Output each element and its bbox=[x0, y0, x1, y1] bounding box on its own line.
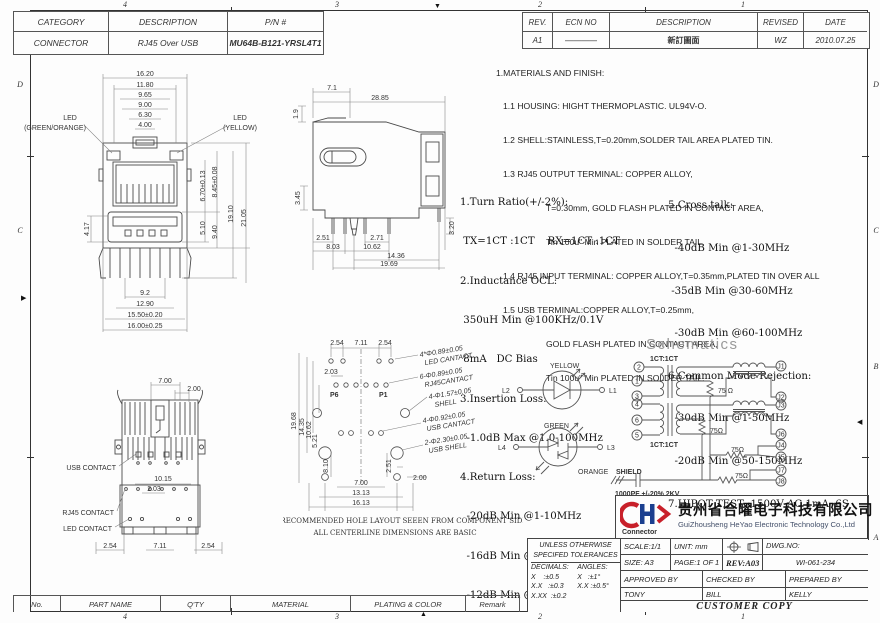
zone-top-2: 2 bbox=[534, 0, 546, 9]
decimal-tol-3: X.XX :±0.2 bbox=[531, 592, 577, 602]
ratio-bottom-label: 1CT:1CT bbox=[650, 442, 679, 449]
pin-j7: J7 bbox=[777, 468, 785, 475]
led-orange-label: ORANGE bbox=[578, 469, 609, 476]
angles-label: ANGLES: bbox=[577, 563, 620, 573]
led-yellow-label: YELLOW bbox=[550, 363, 580, 370]
projection-symbol-cell bbox=[722, 538, 762, 554]
prepared-by-value: KELLY bbox=[785, 587, 868, 600]
frame-tick bbox=[862, 156, 869, 157]
front-dim-16-00: 16.00±0.25 bbox=[128, 323, 163, 330]
pcb-dim-2-54-left: 2.54 bbox=[330, 340, 344, 347]
part-table-header-description: DESCRIPTION bbox=[109, 12, 228, 32]
rear-dim-10-15: 10.15 bbox=[154, 476, 172, 483]
zone-right-a: A bbox=[870, 533, 880, 542]
resistor-75-2: 75Ω bbox=[710, 428, 723, 435]
front-led-left-label: LED bbox=[63, 115, 77, 122]
rev-header-rev: REV. bbox=[523, 13, 553, 32]
part-table-header-pn: P/N # bbox=[228, 12, 323, 32]
pcb-annotations: 4*Φ0.89±0.05 LED CANTACT 6-Φ0.89±0.05 RJ… bbox=[419, 345, 476, 455]
pcb-dim-2-00: 2.00 bbox=[413, 475, 427, 482]
pcb-dim-19-68: 19.68 bbox=[291, 412, 298, 430]
led-symbols bbox=[514, 369, 605, 474]
rear-label-rj45-contact: RJ45 CONTACT bbox=[62, 510, 114, 517]
angle-tol-1: X :±1° bbox=[577, 573, 620, 583]
front-dim-6-70: 6.70±0.13 bbox=[200, 170, 207, 201]
zone-top-4: 4 bbox=[119, 0, 131, 9]
pcb-dim-2-54-right: 2.54 bbox=[378, 340, 392, 347]
tolerance-title-2: SPECIFED TOLERANCES bbox=[531, 551, 620, 564]
pin-j2: J2 bbox=[777, 395, 785, 402]
part-table: CATEGORY DESCRIPTION P/N # CONNECTOR RJ4… bbox=[13, 11, 324, 55]
dwg-no-value-cell: WI-061-234 bbox=[762, 554, 868, 570]
led-l2-label: L2 bbox=[502, 388, 510, 395]
part-table-header-category: CATEGORY bbox=[14, 12, 109, 32]
ratio-top-label: 1CT:1CT bbox=[650, 356, 679, 363]
prepared-by-label: PREPARED BY bbox=[785, 570, 868, 587]
rear-dim-7-00: 7.00 bbox=[158, 378, 172, 385]
front-view-drawing: 16.20 11.80 9.65 9.00 6.30 4.00 LED (GRE… bbox=[15, 52, 285, 344]
strip-header-plating: PLATING & COLOR bbox=[350, 595, 465, 612]
zone-right-d: D bbox=[870, 80, 880, 89]
pcb-note-2: ALL CENTERLINE DIMENSIONS ARE BASIC bbox=[312, 529, 476, 537]
pin-j5: J5 bbox=[777, 455, 785, 462]
checked-by-label: CHECKED BY bbox=[702, 570, 785, 587]
size-cell: SIZE: A3 bbox=[620, 554, 670, 570]
pcb-dim-5-21: 5.21 bbox=[312, 434, 319, 448]
front-dim-21-05: 21.05 bbox=[241, 209, 248, 227]
pcb-label-p1: P1 bbox=[379, 392, 388, 399]
front-dim-8-45: 8.45±0.08 bbox=[212, 166, 219, 197]
logo-connector-text: Connector bbox=[622, 529, 657, 536]
led-l3-label: L3 bbox=[607, 445, 615, 452]
zone-bottom-3: 3 bbox=[331, 612, 343, 621]
front-dim-16-20: 16.20 bbox=[136, 71, 154, 78]
projection-symbols-icon bbox=[726, 541, 760, 553]
rear-dim-2-00: 2.00 bbox=[187, 386, 201, 393]
company-logo: Connector bbox=[620, 498, 674, 536]
rev-header-date: DATE bbox=[804, 13, 867, 32]
approved-by-label: APPROVED BY bbox=[620, 570, 702, 587]
pcb-dim-14-35: 14.35 bbox=[299, 418, 306, 436]
spec-line: -35dB Min @30-60MHz bbox=[668, 285, 849, 299]
schematic-drawing: YELLOW L2 L1 GREEN ORANGE L4 L3 1CT:1CT … bbox=[488, 352, 880, 504]
resistor-75-1: 75 Ω bbox=[718, 388, 733, 395]
side-dim-7-1: 7.1 bbox=[327, 85, 337, 92]
side-view-lines bbox=[313, 118, 445, 235]
pcb-dim-7-11: 7.11 bbox=[354, 340, 367, 347]
part-table-category: CONNECTOR bbox=[14, 32, 109, 54]
tolerance-box: UNLESS OTHERWISE SPECIFED TOLERANCES DEC… bbox=[527, 538, 620, 612]
side-dim-2-51: 2.51 bbox=[316, 235, 330, 242]
side-dim-19-69: 19.69 bbox=[380, 261, 398, 268]
side-view-dimlines bbox=[298, 88, 454, 270]
rear-label-usb-contact: USB CONTACT bbox=[66, 465, 116, 472]
strip-header-material: MATERIAL bbox=[230, 595, 350, 612]
rear-view-lines bbox=[115, 390, 205, 534]
side-dim-2-71: 2.71 bbox=[370, 235, 384, 242]
shield-label: SHIELD bbox=[616, 469, 642, 476]
part-table-pn: MU64B-B121-YRSL4T1 bbox=[228, 32, 323, 54]
schematics-title: Schematics bbox=[646, 336, 739, 353]
led-green-label: GREEN bbox=[544, 423, 569, 430]
rev-header-revised: REVISED bbox=[758, 13, 804, 32]
front-dim-9-65: 9.65 bbox=[138, 92, 152, 99]
front-dim-9-00: 9.00 bbox=[138, 102, 152, 109]
front-led-right-color: (YELLOW) bbox=[223, 125, 257, 132]
led-l1-label: L1 bbox=[609, 388, 617, 395]
side-dim-8-03: 8.03 bbox=[326, 244, 340, 251]
zone-right-c: C bbox=[870, 226, 880, 235]
strip-header-part-name: PART NAME bbox=[60, 595, 160, 612]
side-dim-3-20: 3.20 bbox=[449, 221, 456, 235]
front-dim-6-30: 6.30 bbox=[138, 112, 152, 119]
zone-top-3: 3 bbox=[331, 0, 343, 9]
resistor-75-4: 75Ω bbox=[735, 473, 748, 480]
spec-line: 1.Turn Ratio(+/-2%): bbox=[460, 196, 620, 209]
tolerance-title-1: UNLESS OTHERWISE bbox=[539, 541, 611, 551]
zone-bottom-4: 4 bbox=[119, 612, 131, 621]
centerline-arrow-top: ▼ bbox=[434, 3, 441, 10]
pin-6: 6 bbox=[635, 418, 639, 425]
note-line: 1.2 SHELL:STAINLESS,T=0.20mm,SOLDER TAIL… bbox=[496, 135, 820, 146]
scale-cell: SCALE:1/1 bbox=[620, 538, 670, 554]
decimals-label: DECIMALS: bbox=[531, 563, 577, 573]
rev-header-ecn: ECN NO bbox=[553, 13, 610, 32]
decimal-tol-2: X.X :±0.3 bbox=[531, 582, 577, 592]
pin-2: 2 bbox=[637, 365, 641, 372]
side-dim-10-62: 10.62 bbox=[363, 244, 381, 251]
strip-header-no: No. bbox=[13, 595, 60, 612]
front-dim-9-40: 9.40 bbox=[212, 225, 219, 239]
strip-header-qty: Q'TY bbox=[160, 595, 230, 612]
revision-table: REV. ECN NO DESCRIPTION REVISED DATE A1 … bbox=[522, 12, 870, 49]
approved-by-value: TONY bbox=[620, 587, 702, 600]
customer-copy-banner: CUSTOMER COPY bbox=[620, 600, 868, 612]
pcb-dim-8-10: 8.10 bbox=[323, 459, 330, 473]
rear-dim-2-54-left: 2.54 bbox=[103, 543, 117, 550]
spec-line: 5.Cross talk: bbox=[668, 199, 849, 213]
front-dim-19-10: 19.10 bbox=[228, 205, 235, 223]
pcb-ann-shell-label: SHELL bbox=[434, 399, 457, 409]
strip-header-remark: Remark bbox=[465, 595, 520, 612]
drawing-sheet: 4 3 2 1 4 3 2 1 D C D C B A ▼ ▲ ▶ ◀ CATE… bbox=[0, 0, 880, 623]
pcb-label-p6: P6 bbox=[330, 392, 339, 399]
front-dim-4-17: 4.17 bbox=[84, 222, 91, 236]
led-l4-label: L4 bbox=[498, 445, 506, 452]
rear-label-led-contact: LED CONTACT bbox=[63, 526, 113, 533]
heyao-logo-icon bbox=[621, 504, 668, 526]
note-line: 1.MATERIALS AND FINISH: bbox=[496, 68, 820, 79]
front-dim-12-90: 12.90 bbox=[136, 301, 154, 308]
pin-5: 5 bbox=[635, 433, 639, 440]
checked-by-value: BILL bbox=[702, 587, 785, 600]
front-dim-5-10: 5.10 bbox=[200, 221, 207, 235]
pcb-dim-13-13: 13.13 bbox=[352, 490, 370, 497]
front-dim-9-2: 9.2 bbox=[140, 290, 150, 297]
front-dim-4-00: 4.00 bbox=[138, 122, 152, 129]
pin-j1: J1 bbox=[777, 364, 785, 371]
company-name-en: GuiZhousheng HeYao Electronic Technology… bbox=[678, 520, 855, 529]
rear-view-drawing: 7.00 2.00 USB CONTACT 10.15 2.03 RJ45 CO… bbox=[28, 342, 290, 568]
pcb-layout-drawing: 2.54 7.11 2.54 2.03 P6 P1 19.68 14.35 10… bbox=[283, 333, 523, 545]
pin-3: 3 bbox=[635, 394, 639, 401]
rear-dim-2-03: 2.03 bbox=[147, 486, 161, 493]
front-led-right-label: LED bbox=[233, 115, 247, 122]
side-dim-1-9: 1.9 bbox=[293, 109, 300, 119]
part-table-description: RJ45 Over USB bbox=[109, 32, 228, 54]
front-dim-15-50: 15.50±0.20 bbox=[128, 312, 163, 319]
rear-dim-7-11: 7.11 bbox=[153, 543, 166, 550]
pcb-note-1: P.C.B RECOMMENDED HOLE LAYOUT SEEEN FROM… bbox=[283, 517, 523, 525]
pcb-dim-2-03: 2.03 bbox=[324, 369, 338, 376]
side-dim-28-85: 28.85 bbox=[371, 95, 389, 102]
front-dim-11-80: 11.80 bbox=[137, 82, 154, 89]
pin-1: 1 bbox=[635, 379, 639, 386]
side-dim-14-36: 14.36 bbox=[387, 253, 405, 260]
centerline-arrow-bottom: ▲ bbox=[420, 611, 427, 618]
angle-tol-2: X.X :±0.5° bbox=[577, 582, 620, 592]
pin-j4: J4 bbox=[777, 443, 785, 450]
side-dim-3-45: 3.45 bbox=[295, 191, 302, 205]
spec-line: TX=1CT :1CT RX=1CT :1CT bbox=[460, 235, 620, 248]
pcb-dim-16-13: 16.13 bbox=[352, 500, 370, 507]
decimal-tol-1: X :±0.5 bbox=[531, 573, 577, 583]
pcb-dim-7-00: 7.00 bbox=[354, 480, 368, 487]
spec-line: 2.Inductance OCL: bbox=[460, 275, 620, 288]
front-led-left-color: (GREEN/ORANGE) bbox=[24, 125, 86, 132]
zone-top-1: 1 bbox=[737, 0, 749, 9]
note-line: 1.1 HOUSING: HIGHT THERMOPLASTIC. UL94V-… bbox=[496, 101, 820, 112]
front-view-lines bbox=[99, 137, 191, 278]
pin-j3: J3 bbox=[777, 403, 785, 410]
pin-j8: J8 bbox=[777, 479, 785, 486]
pin-j6: J6 bbox=[777, 432, 785, 439]
pin-4: 4 bbox=[635, 402, 639, 409]
page-cell: PAGE:1 OF 1 bbox=[670, 554, 722, 570]
rev-header-description: DESCRIPTION bbox=[610, 13, 758, 32]
company-name-cn: 贵州省合曜电子科技有限公司 bbox=[678, 499, 873, 520]
side-view-drawing: 1.9 7.1 28.85 3.45 2.51 2.71 8.03 10.62 … bbox=[288, 58, 480, 280]
dwg-no-label-cell: DWG.NO: bbox=[762, 538, 868, 554]
pcb-dim-2-51: 2.51 bbox=[386, 459, 393, 473]
rear-dim-2-54-right: 2.54 bbox=[201, 543, 215, 550]
resistor-75-3: 75Ω bbox=[731, 447, 744, 454]
unit-cell: UNIT: mm bbox=[670, 538, 722, 554]
spec-line: 350uH Min @100KHz/0.1V bbox=[460, 314, 620, 327]
rev-cell: REV:A03 bbox=[722, 554, 762, 570]
spec-line: -40dB Min @1-30MHz bbox=[668, 242, 849, 256]
